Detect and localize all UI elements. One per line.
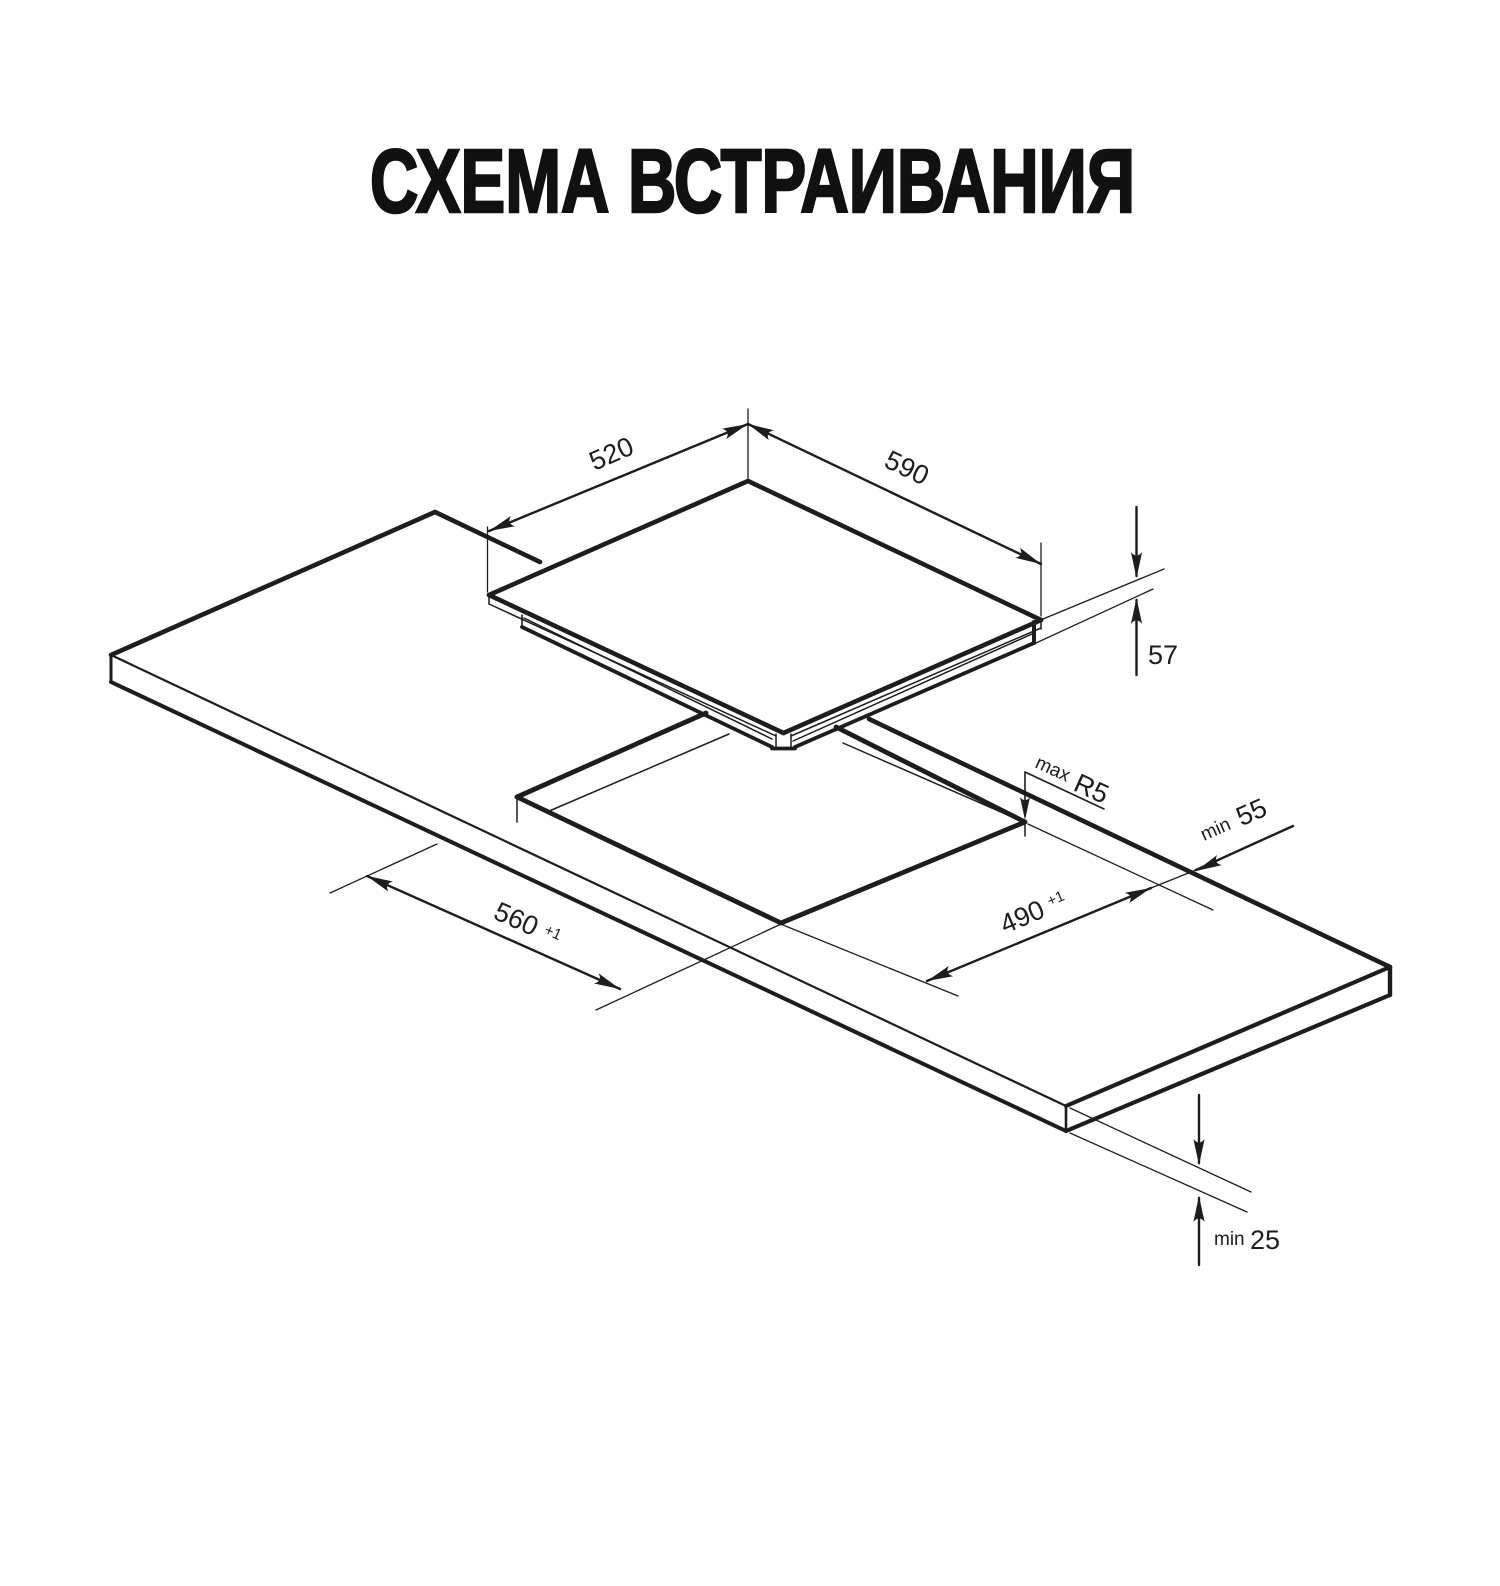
svg-text:min: min [1197,814,1234,846]
svg-text:max: max [1032,752,1074,786]
svg-text:+1: +1 [1045,888,1067,910]
svg-text:+1: +1 [542,921,565,944]
svg-text:55: 55 [1232,792,1272,832]
svg-text:25: 25 [1250,1225,1280,1255]
svg-text:min: min [1214,1229,1245,1250]
svg-text:520: 520 [585,431,638,477]
svg-text:57: 57 [1148,640,1178,670]
svg-text:R5: R5 [1069,768,1113,810]
svg-text:590: 590 [880,445,934,491]
